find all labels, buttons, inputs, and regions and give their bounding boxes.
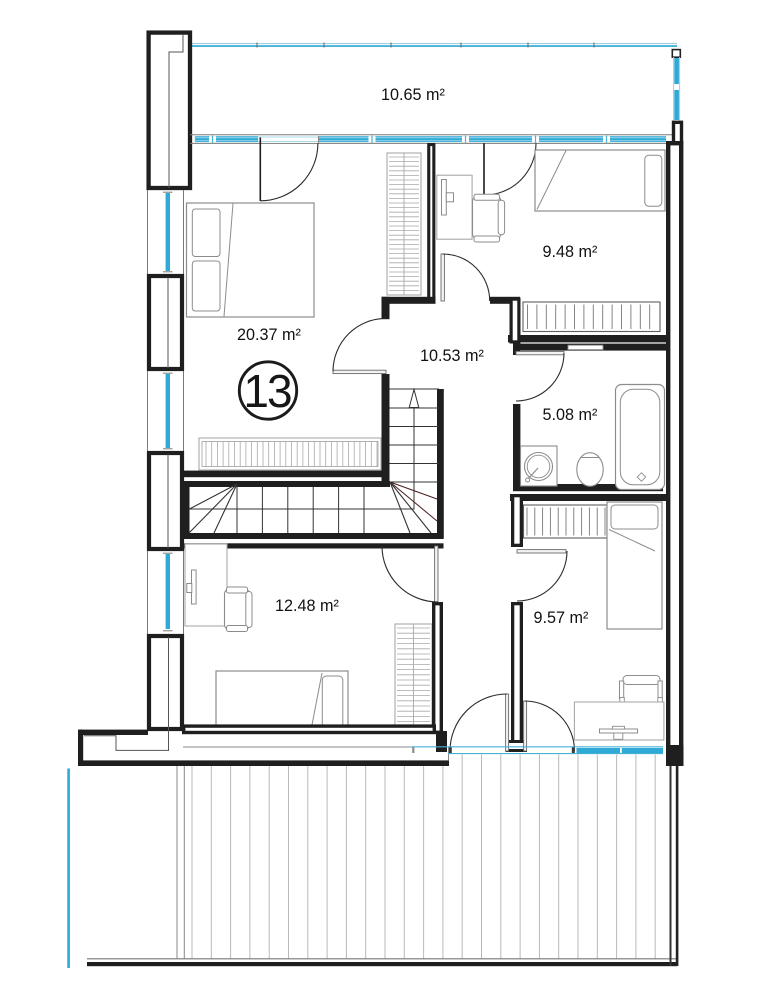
svg-text:10.53 m²: 10.53 m²	[420, 347, 484, 365]
svg-text:10.65 m²: 10.65 m²	[381, 86, 445, 104]
svg-text:9.48 m²: 9.48 m²	[543, 243, 598, 261]
svg-text:5.08 m²: 5.08 m²	[543, 406, 598, 424]
svg-text:9.57 m²: 9.57 m²	[534, 609, 589, 627]
svg-text:12.48 m²: 12.48 m²	[275, 597, 339, 615]
svg-text:13: 13	[243, 365, 291, 417]
svg-text:20.37 m²: 20.37 m²	[237, 326, 301, 344]
